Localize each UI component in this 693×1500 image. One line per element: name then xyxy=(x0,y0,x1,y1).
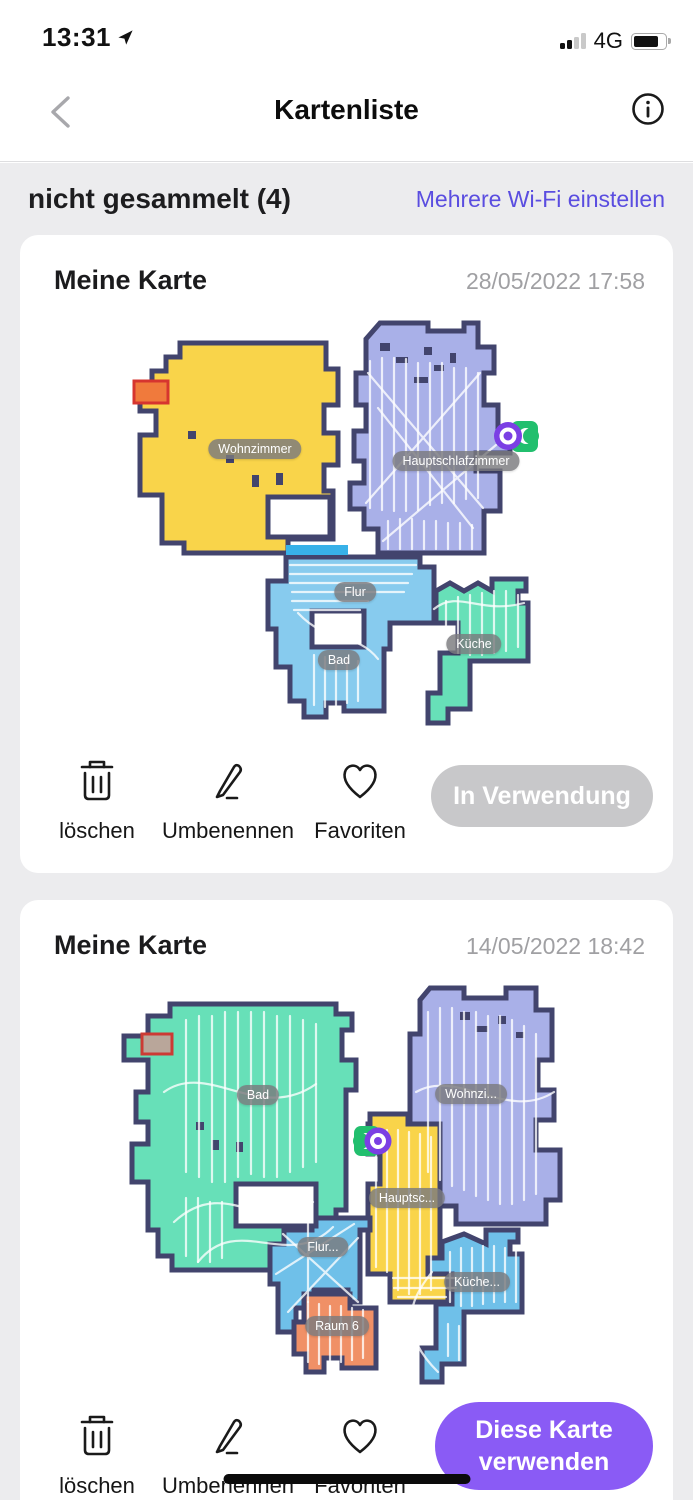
map-preview-2[interactable]: Bad Wohnzi... Hauptsc... Flur... Raum 6 … xyxy=(108,972,608,1390)
room-label: Hauptsc... xyxy=(369,1188,445,1208)
robot-position-icon xyxy=(494,422,522,450)
map-date: 28/05/2022 17:58 xyxy=(466,268,645,295)
room-label: Hauptschlafzimmer xyxy=(393,451,520,471)
map-in-use-button: In Verwendung xyxy=(431,765,653,827)
room-label: Wohnzimmer xyxy=(208,439,301,459)
rename-label: Umbenennen xyxy=(153,818,303,844)
map-preview-1[interactable]: Wohnzimmer Hauptschlafzimmer Flur Bad Kü… xyxy=(128,313,640,747)
room-label: Flur... xyxy=(297,1237,348,1257)
section-title: nicht gesammelt (4) xyxy=(28,183,291,215)
clock-text: 13:31 xyxy=(42,22,111,53)
room-label: Wohnzi... xyxy=(435,1084,507,1104)
rename-map-button[interactable]: Umbenennen xyxy=(153,1412,303,1499)
battery-icon xyxy=(631,33,667,50)
rename-map-button[interactable]: Umbenennen xyxy=(153,757,303,844)
room-label: Bad xyxy=(237,1085,279,1105)
info-button[interactable] xyxy=(631,92,665,126)
delete-map-button[interactable]: löschen xyxy=(22,757,172,844)
pencil-icon xyxy=(207,1412,249,1458)
map-card-1[interactable]: Meine Karte 28/05/2022 17:58 xyxy=(20,235,673,873)
map-list-content: nicht gesammelt (4) Mehrere Wi-Fi einste… xyxy=(0,163,693,1500)
status-time: 13:31 xyxy=(42,22,134,53)
signal-strength-icon xyxy=(560,33,586,49)
status-bar: 13:31 4G xyxy=(0,0,693,62)
trash-icon xyxy=(76,757,118,803)
multi-wifi-link[interactable]: Mehrere Wi-Fi einstellen xyxy=(416,186,665,213)
favorite-label: Favoriten xyxy=(285,818,435,844)
navigation-bar: Kartenliste xyxy=(0,62,693,162)
map-name: Meine Karte xyxy=(54,265,207,296)
trash-icon xyxy=(76,1412,118,1458)
room-label: Bad xyxy=(318,650,360,670)
favorite-map-button[interactable]: Favoriten xyxy=(285,757,435,844)
card-header: Meine Karte 14/05/2022 18:42 xyxy=(20,900,673,961)
room-label: Flur xyxy=(334,582,376,602)
network-type-label: 4G xyxy=(594,28,623,54)
page-title: Kartenliste xyxy=(0,94,693,126)
status-icons: 4G xyxy=(560,28,667,54)
room-label: Küche... xyxy=(444,1272,510,1292)
map-card-2[interactable]: Meine Karte 14/05/2022 18:42 xyxy=(20,900,673,1500)
dock-marker xyxy=(134,381,168,403)
map-canvas xyxy=(128,313,640,747)
card-header: Meine Karte 28/05/2022 17:58 xyxy=(20,235,673,296)
delete-map-button[interactable]: löschen xyxy=(22,1412,172,1499)
section-header: nicht gesammelt (4) Mehrere Wi-Fi einste… xyxy=(0,163,693,229)
delete-label: löschen xyxy=(22,1473,172,1499)
room-label: Küche xyxy=(446,634,501,654)
heart-icon xyxy=(339,757,381,803)
dock-marker xyxy=(142,1034,172,1054)
map-name: Meine Karte xyxy=(54,930,207,961)
map-date: 14/05/2022 18:42 xyxy=(466,933,645,960)
heart-icon xyxy=(339,1412,381,1458)
pencil-icon xyxy=(207,757,249,803)
home-indicator[interactable] xyxy=(223,1474,470,1484)
room-label: Raum 6 xyxy=(305,1316,369,1336)
favorite-map-button[interactable]: Favoriten xyxy=(285,1412,435,1499)
delete-label: löschen xyxy=(22,818,172,844)
robot-position-icon xyxy=(365,1128,392,1155)
location-arrow-icon xyxy=(117,29,134,46)
